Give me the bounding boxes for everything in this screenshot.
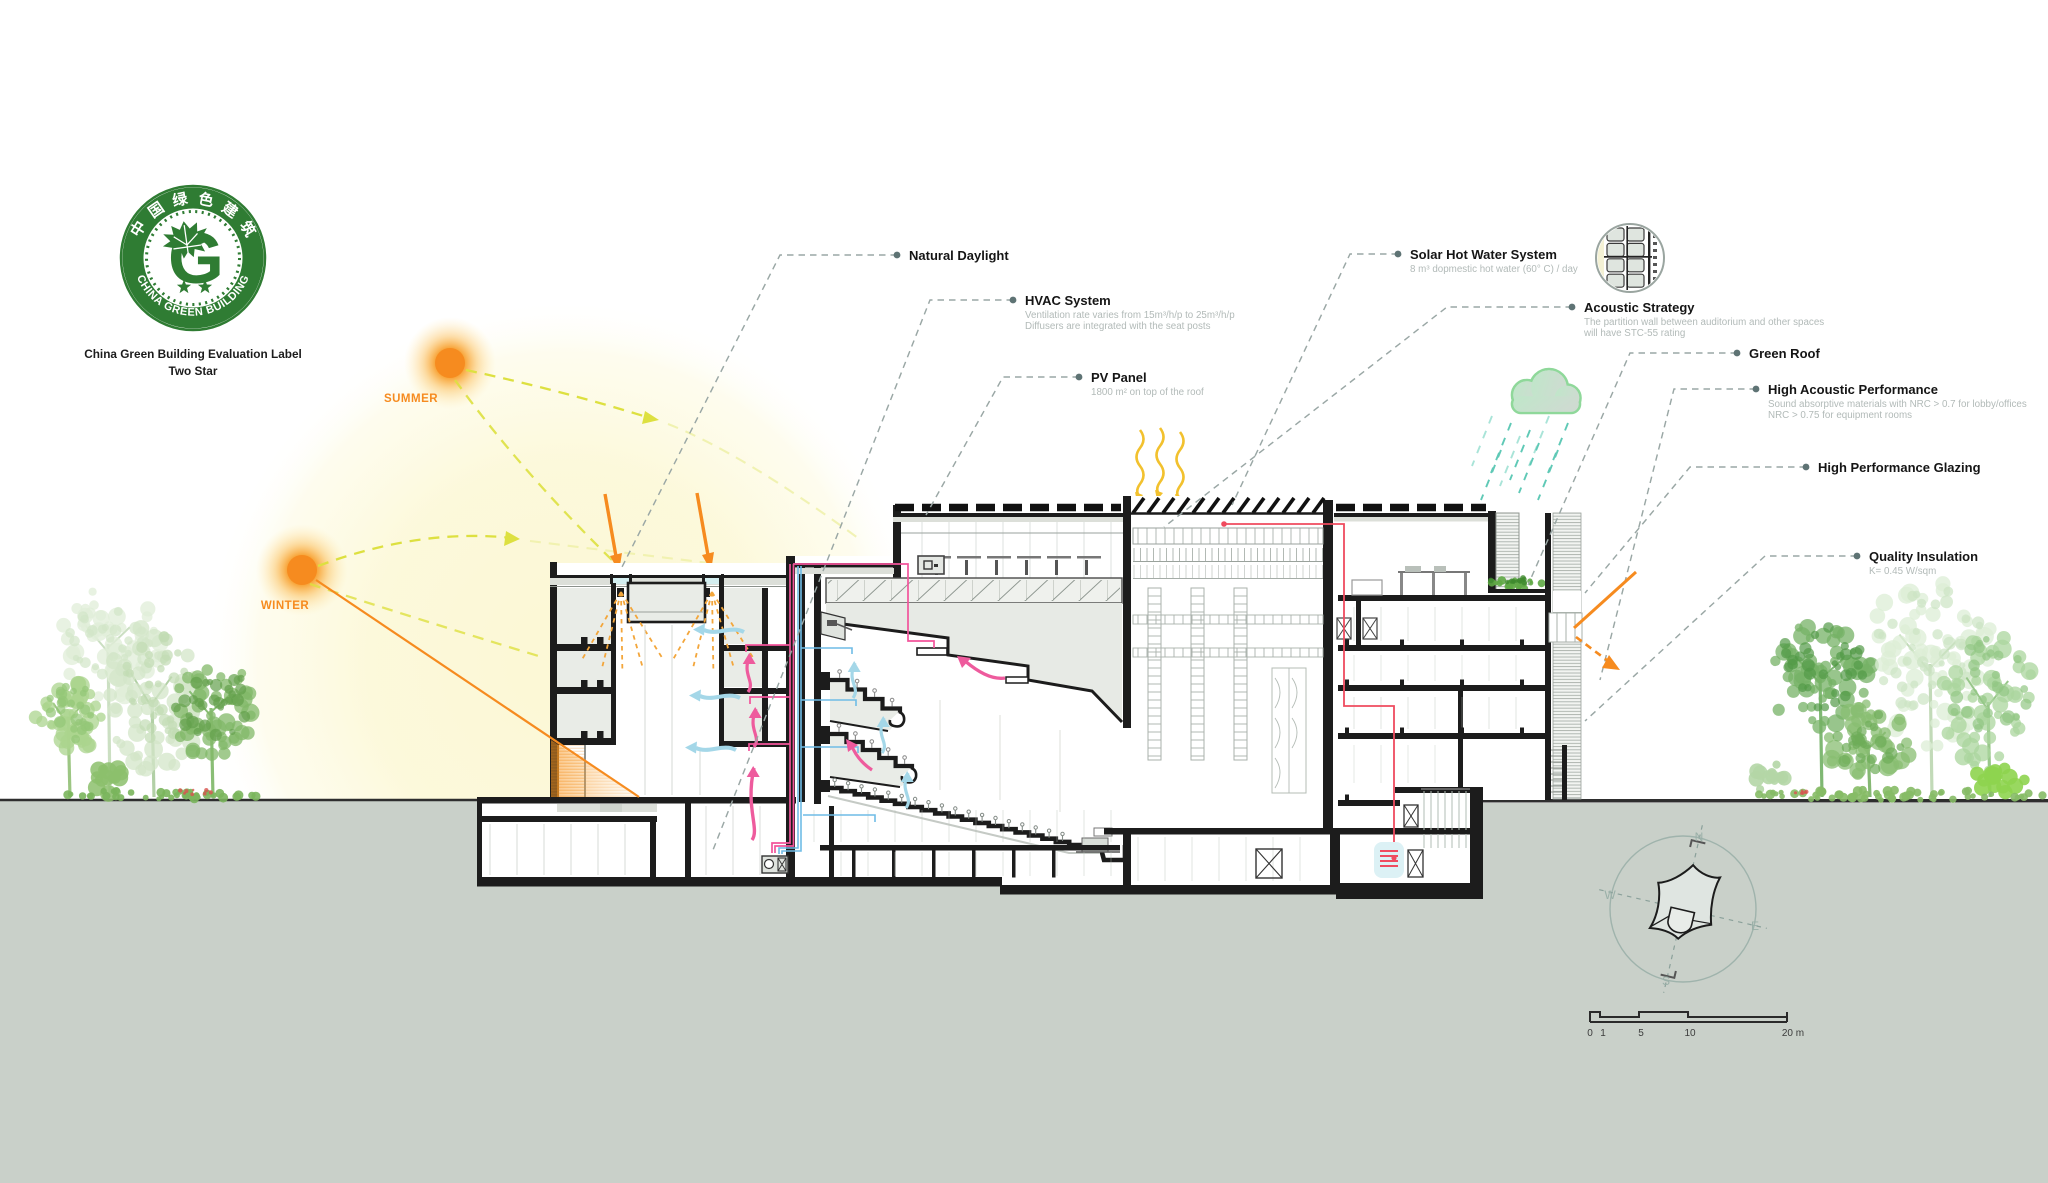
svg-text:Quality Insulation: Quality Insulation xyxy=(1869,549,1978,564)
svg-text:High Acoustic Performance: High Acoustic Performance xyxy=(1768,382,1938,397)
svg-text:1: 1 xyxy=(1600,1028,1606,1039)
svg-text:5: 5 xyxy=(1638,1028,1644,1039)
svg-text:PV Panel: PV Panel xyxy=(1091,370,1147,385)
svg-text:Ventilation rate varies from 1: Ventilation rate varies from 15m³/h/p to… xyxy=(1025,310,1235,321)
svg-text:20 m: 20 m xyxy=(1782,1028,1804,1039)
svg-text:HVAC System: HVAC System xyxy=(1025,293,1111,308)
svg-text:K= 0.45 W/sqm: K= 0.45 W/sqm xyxy=(1869,566,1936,577)
svg-text:0: 0 xyxy=(1587,1028,1593,1039)
svg-text:High Performance Glazing: High Performance Glazing xyxy=(1818,460,1981,475)
svg-text:8 m³ dopmestic hot water (60°: 8 m³ dopmestic hot water (60° C) / day xyxy=(1410,264,1578,275)
svg-text:NRC > 0.75 for equipment rooms: NRC > 0.75 for equipment rooms xyxy=(1768,410,1912,421)
svg-text:Green Roof: Green Roof xyxy=(1749,346,1820,361)
svg-text:Acoustic Strategy: Acoustic Strategy xyxy=(1584,300,1695,315)
svg-text:E: E xyxy=(1751,919,1759,933)
svg-text:China Green Building Evaluatio: China Green Building Evaluation Label xyxy=(84,347,302,361)
svg-text:Two Star: Two Star xyxy=(169,364,218,378)
svg-text:Sound absorptive materials wit: Sound absorptive materials with NRC > 0.… xyxy=(1768,399,2027,410)
svg-text:The partition wall between aud: The partition wall between auditorium an… xyxy=(1584,317,1824,328)
svg-text:N: N xyxy=(1695,830,1704,844)
svg-text:will have STC-55 rating: will have STC-55 rating xyxy=(1583,328,1685,339)
svg-text:WINTER: WINTER xyxy=(261,600,310,612)
svg-text:10: 10 xyxy=(1684,1028,1696,1039)
svg-text:1800 m² on top of the roof: 1800 m² on top of the roof xyxy=(1091,387,1204,398)
svg-text:S: S xyxy=(1662,974,1670,988)
svg-text:Diffusers are integrated with: Diffusers are integrated with the seat p… xyxy=(1025,321,1211,332)
svg-text:W: W xyxy=(1604,888,1616,902)
svg-text:Solar Hot Water System: Solar Hot Water System xyxy=(1410,247,1557,262)
svg-text:SUMMER: SUMMER xyxy=(384,393,438,405)
svg-text:Natural Daylight: Natural Daylight xyxy=(909,248,1009,263)
